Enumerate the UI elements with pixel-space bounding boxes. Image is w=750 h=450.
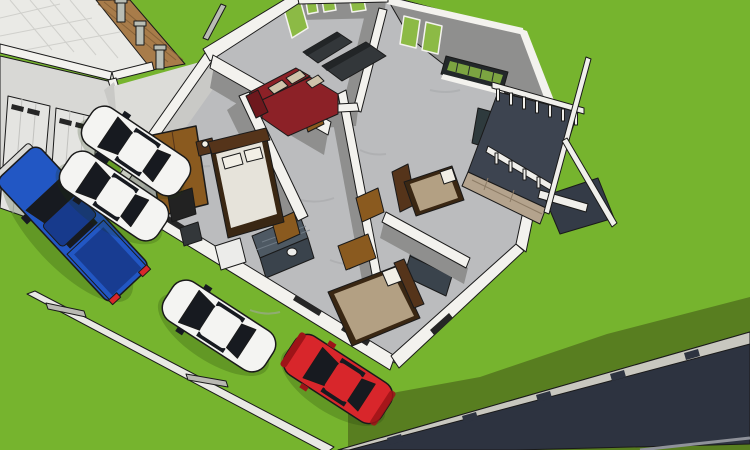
scene-canvas [0,0,750,450]
toilet [287,248,297,256]
render-viewport [0,0,750,450]
kitchen-window [422,22,442,54]
kitchen-window [400,16,420,48]
lamp [202,141,208,147]
